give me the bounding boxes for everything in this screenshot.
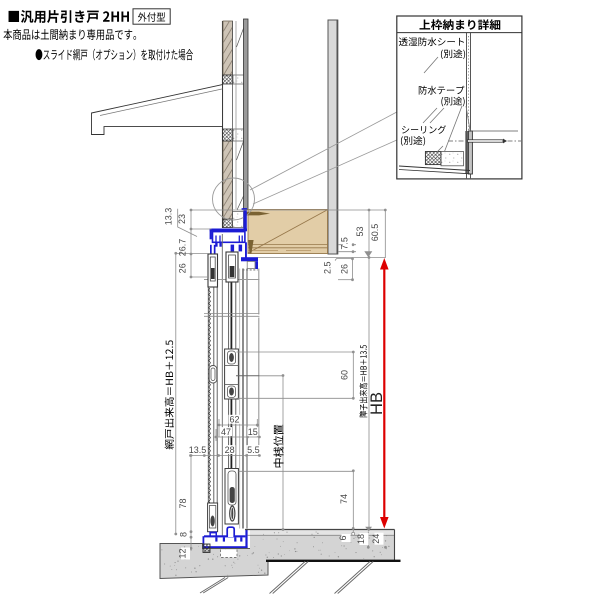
svg-text:23: 23 — [177, 214, 187, 224]
svg-text:18: 18 — [356, 534, 366, 544]
svg-text:26.7: 26.7 — [178, 239, 188, 257]
svg-text:62: 62 — [229, 415, 239, 425]
svg-text:7.5: 7.5 — [339, 237, 349, 250]
svg-text:13.5: 13.5 — [189, 445, 207, 455]
svg-text:26: 26 — [178, 263, 188, 273]
svg-text:53: 53 — [355, 226, 365, 236]
svg-text:60.5: 60.5 — [370, 224, 380, 242]
svg-text:26: 26 — [339, 264, 349, 274]
svg-text:28: 28 — [225, 445, 235, 455]
svg-text:2.5: 2.5 — [323, 261, 333, 274]
svg-text:6: 6 — [338, 535, 348, 540]
svg-text:78: 78 — [178, 498, 188, 508]
svg-text:HB: HB — [368, 392, 386, 415]
svg-text:47: 47 — [221, 427, 231, 437]
svg-text:60: 60 — [340, 370, 350, 380]
svg-text:74: 74 — [339, 494, 349, 504]
svg-text:15: 15 — [248, 427, 258, 437]
svg-text:5.5: 5.5 — [247, 445, 260, 455]
svg-text:24: 24 — [371, 534, 381, 544]
svg-text:13.3: 13.3 — [164, 208, 174, 226]
svg-text:8: 8 — [179, 532, 189, 537]
svg-text:12: 12 — [178, 548, 188, 558]
